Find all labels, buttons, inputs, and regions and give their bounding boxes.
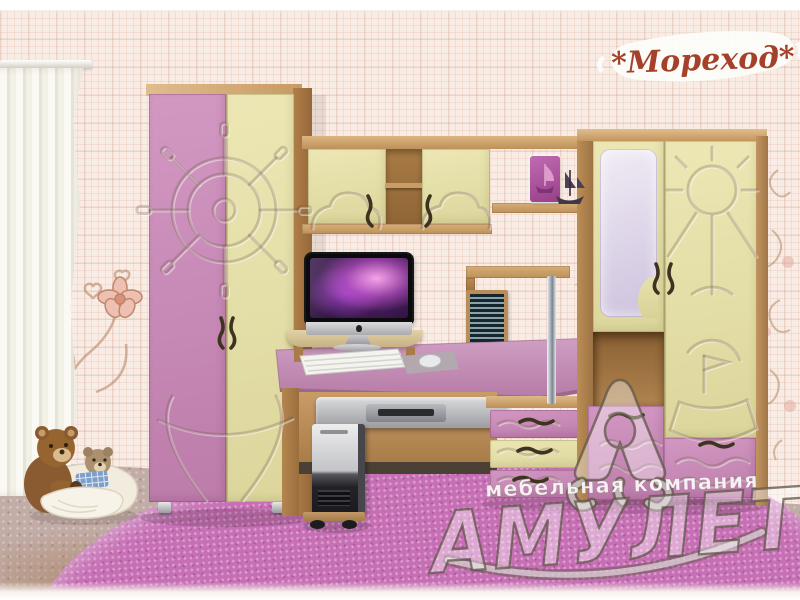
tray-device-slot [378, 409, 434, 416]
right-cabinet-drawer-right [664, 438, 756, 498]
apple-logo-icon [356, 325, 362, 332]
caster-wheel [310, 520, 325, 529]
monitor-shelf-support [294, 347, 303, 362]
caster-wheel [342, 520, 357, 529]
drawer-pink-bottom [490, 470, 588, 498]
right-cabinet-door [664, 141, 758, 438]
desk-side-panel [282, 388, 299, 516]
photo-top-border [0, 0, 800, 13]
pc-tower-drive [320, 430, 348, 434]
right-cabinet-cornice [577, 129, 767, 141]
monitor-shelf-support [406, 347, 415, 362]
imac-screen-wallpaper [310, 258, 408, 318]
pc-tower-vents [318, 490, 350, 506]
right-cabinet-drawer-left [588, 406, 664, 500]
drawer-cream-middle [490, 440, 588, 468]
drawer-pink-top [490, 410, 588, 438]
imac-computer [306, 254, 412, 322]
pc-tower-stand [303, 512, 365, 521]
room-photo: мебельная компания АМУЛЕТ *Мореход* [0, 0, 800, 600]
right-cabinet-side-right [756, 136, 768, 506]
right-cabinet-open-niche [593, 332, 664, 406]
chrome-support-pole [547, 276, 556, 404]
photo-bottom-border [0, 582, 800, 600]
imac-base [333, 344, 381, 351]
